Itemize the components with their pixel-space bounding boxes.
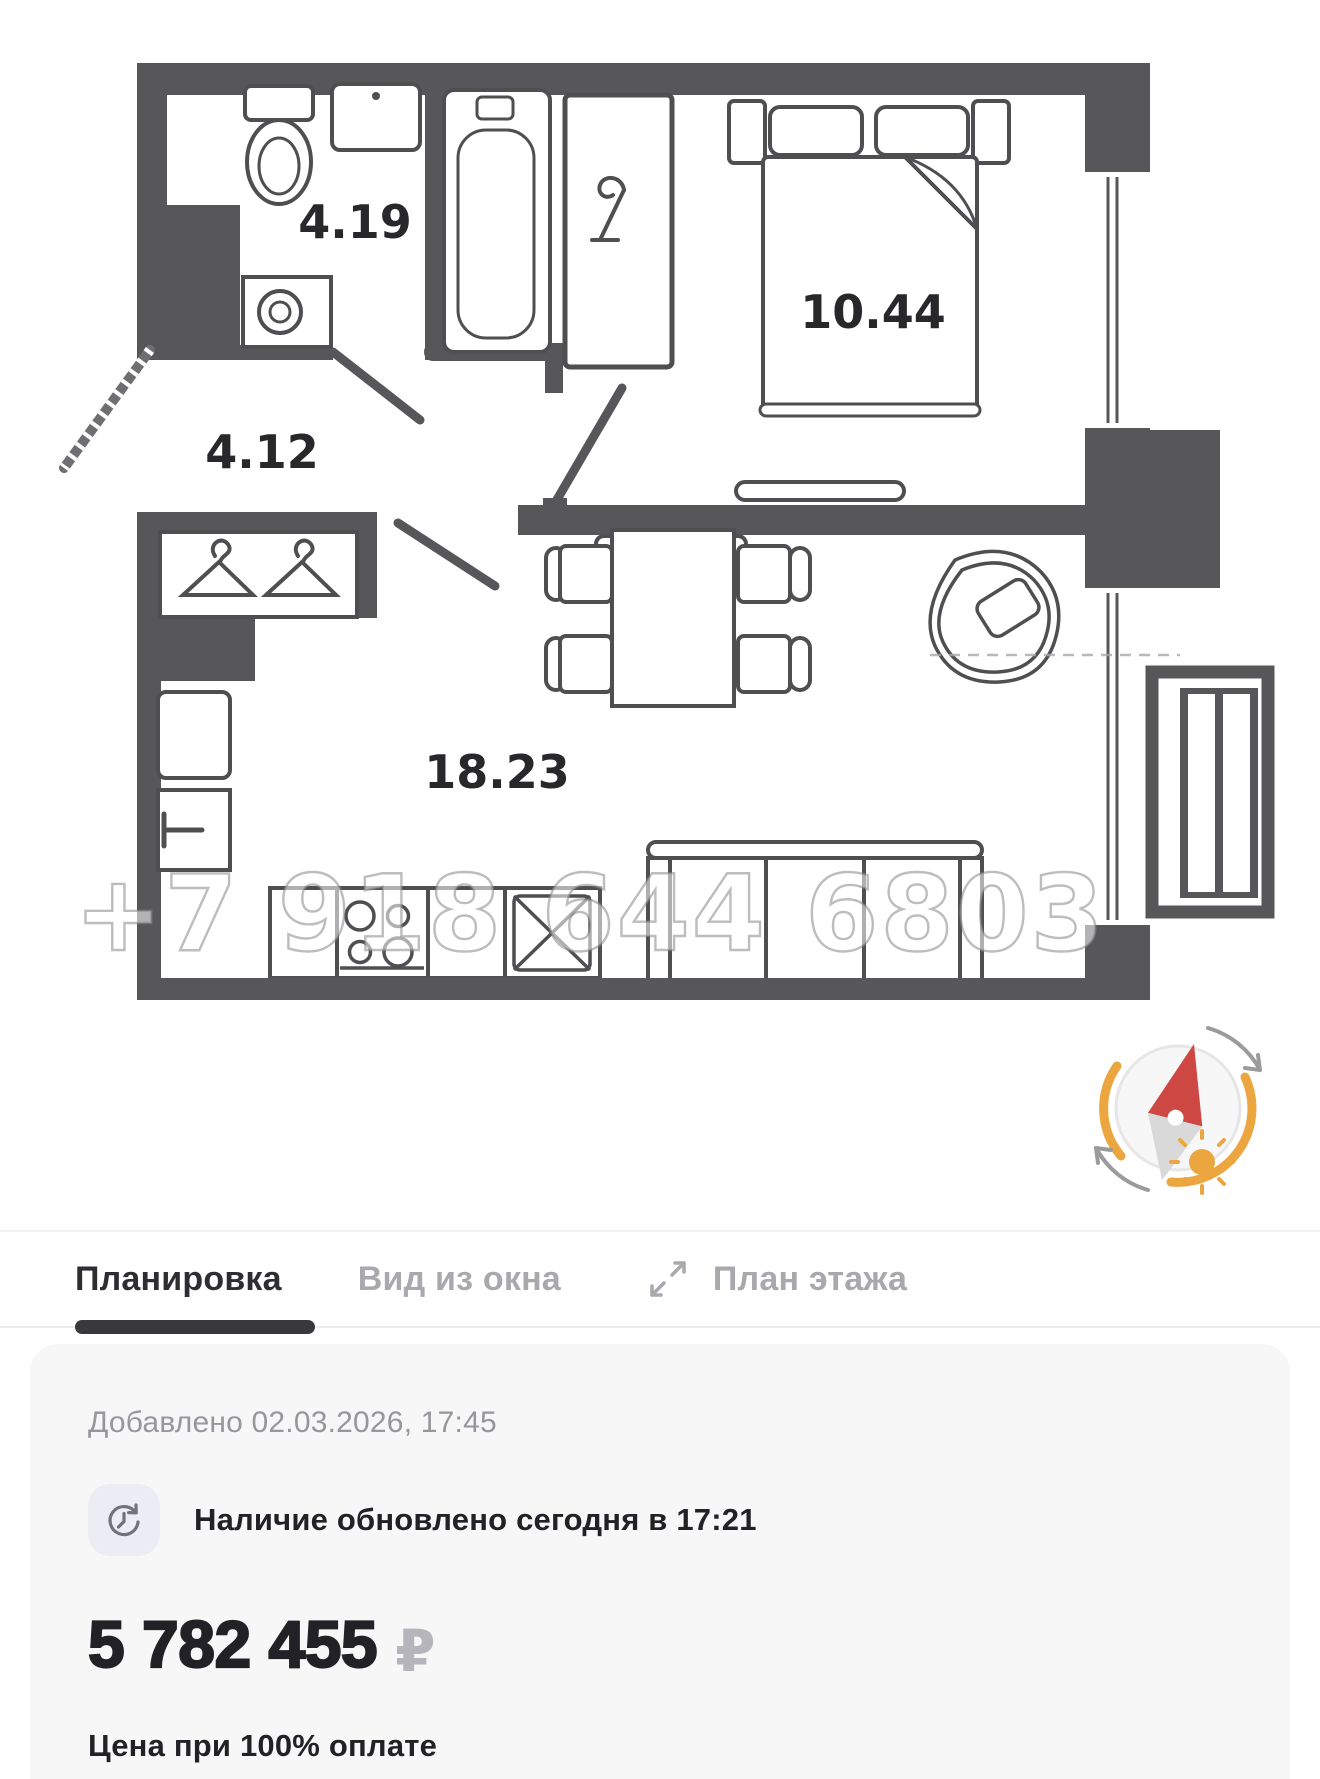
floor-plan-image: 4.19 4.12 10.44 18.23 +7 918 644 6803 [0,0,1320,1230]
bed-footboard [760,404,980,416]
added-date: Добавлено 02.03.2026, 17:45 [88,1406,1232,1440]
dining-table [612,530,734,706]
room-label-bathroom: 4.19 [298,195,412,249]
pillow-left [770,107,862,155]
price-row: 5 782 455 ₽ [88,1606,1232,1682]
sink-icon [332,84,420,150]
pillow-right [876,107,968,155]
price-note: Цена при 100% оплате [88,1728,1232,1764]
balcony [1152,672,1268,912]
nightstand-right [973,101,1009,163]
watermark-phone: +7 918 644 6803 [74,853,1105,975]
bedroom-window [1085,172,1150,428]
clock-tile [88,1484,160,1556]
washing-machine-icon [243,277,331,347]
clock-refresh-icon [102,1498,146,1542]
tab-floor-plan[interactable]: План этажа [713,1260,907,1299]
room-label-living: 18.23 [424,745,570,799]
nightstand-left [729,101,765,163]
expand-button[interactable] [645,1256,691,1302]
active-tab-indicator [75,1320,315,1334]
tab-layout[interactable]: Планировка [75,1260,282,1299]
room-label-bedroom: 10.44 [800,285,946,339]
price-value: 5 782 455 [88,1606,377,1682]
tab-window-view[interactable]: Вид из окна [358,1260,561,1299]
wardrobe-cabinet [565,95,672,367]
availability-text: Наличие обновлено сегодня в 17:21 [194,1502,757,1538]
currency-symbol: ₽ [395,1621,435,1682]
closet [160,532,357,617]
expand-arrows-icon [645,1256,691,1302]
wall-bottom [137,978,1150,1000]
media-tabs: Планировка Вид из окна План этажа [0,1230,1320,1328]
toilet-icon [245,86,313,204]
availability-row: Наличие обновлено сегодня в 17:21 [88,1484,1232,1556]
listing-info-card: Добавлено 02.03.2026, 17:45 Наличие обно… [30,1344,1290,1779]
armchair [930,551,1059,682]
room-label-hallway: 4.12 [205,425,319,479]
bathtub-icon [444,90,550,352]
bedroom-console [736,482,904,500]
floor-plan-svg: 4.19 4.12 10.44 18.23 +7 918 644 6803 [0,0,1320,1230]
